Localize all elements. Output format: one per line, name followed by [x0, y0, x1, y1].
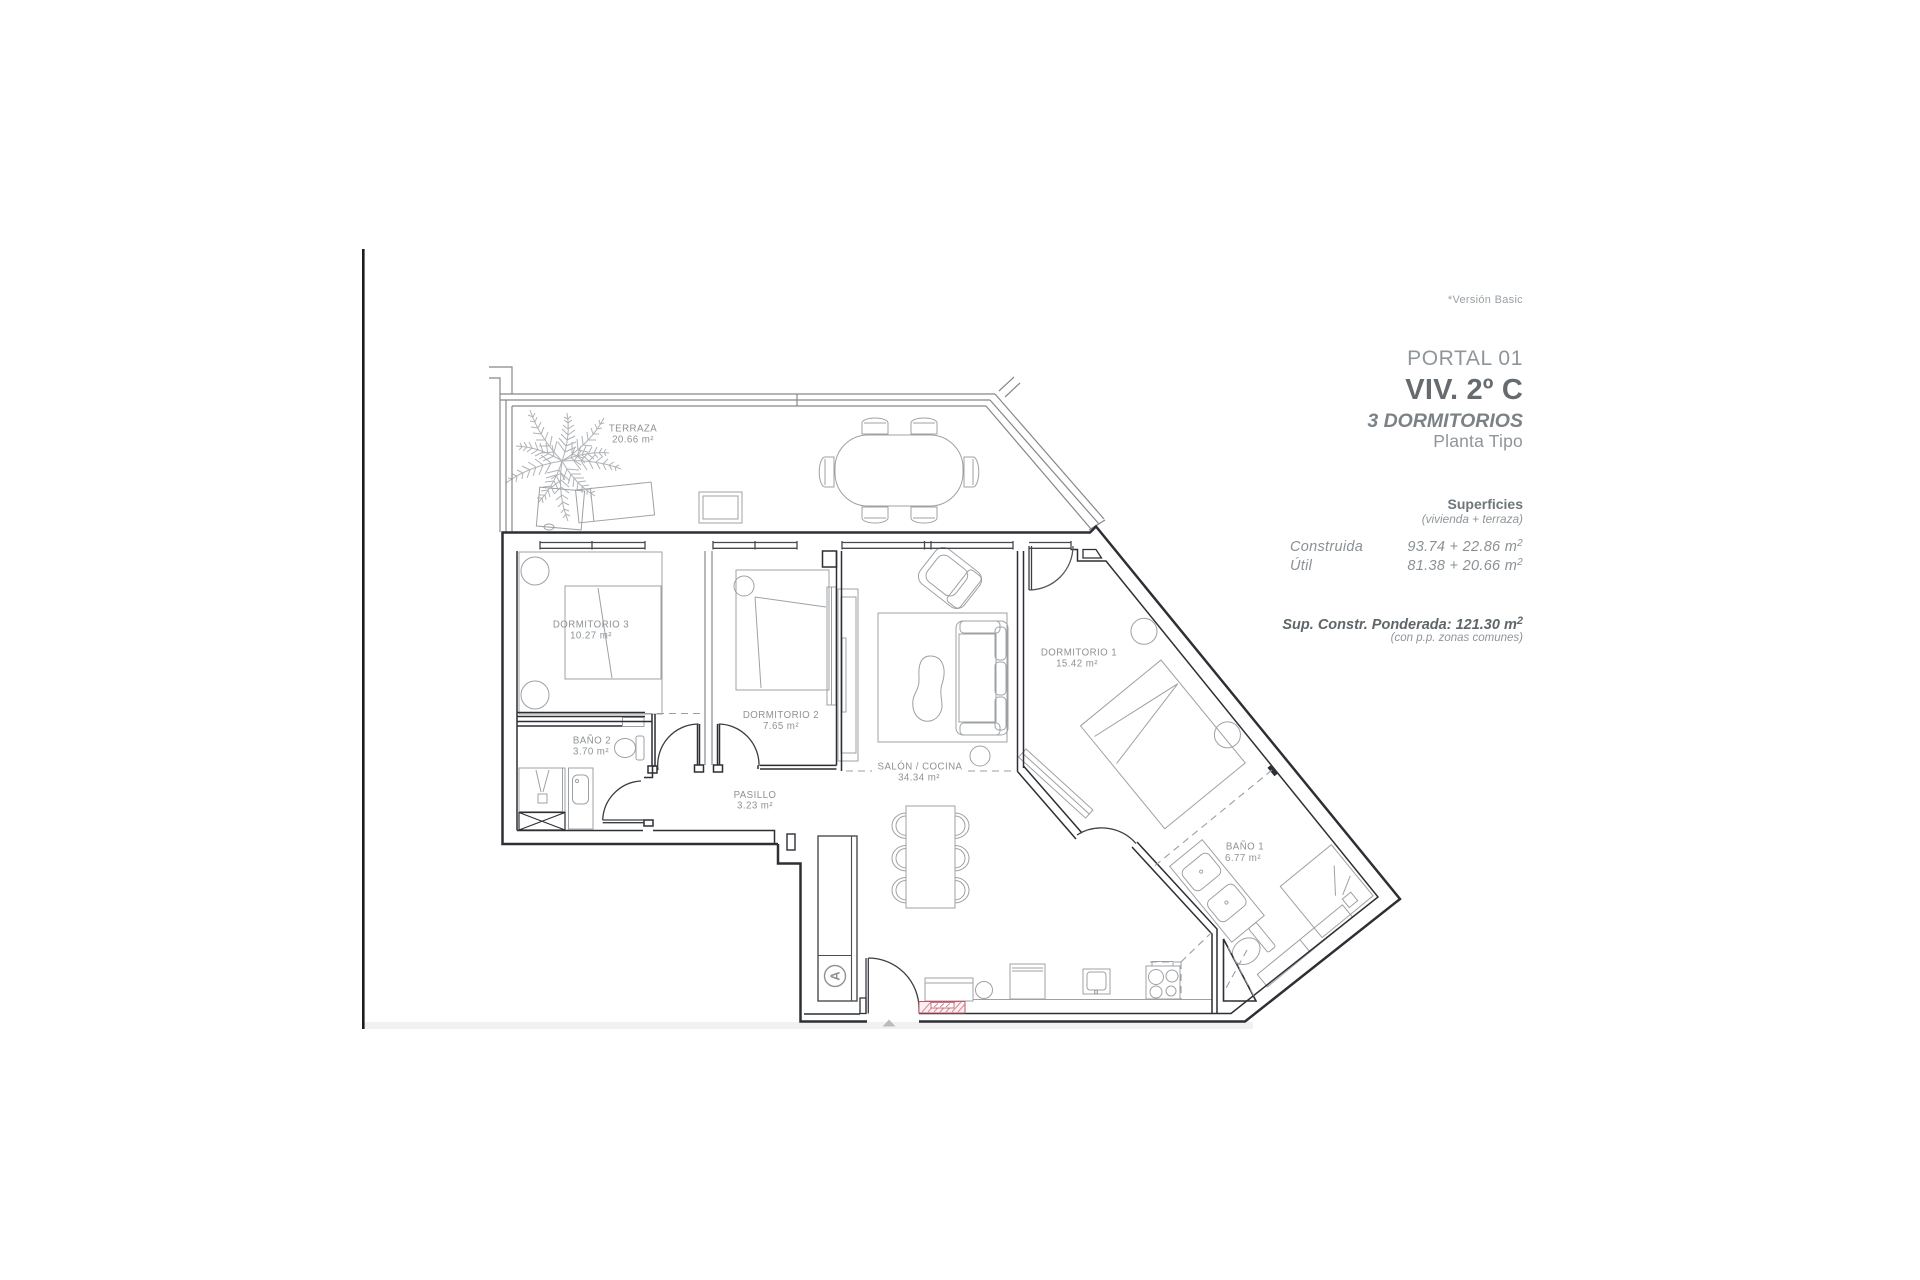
svg-text:PASILLO: PASILLO [734, 790, 777, 801]
svg-text:PORTAL 01: PORTAL 01 [1407, 347, 1523, 370]
svg-text:3.70 m²: 3.70 m² [573, 747, 609, 758]
svg-text:34.34 m²: 34.34 m² [898, 773, 940, 784]
svg-text:3 DORMITORIOS: 3 DORMITORIOS [1367, 410, 1523, 432]
svg-text:20.66 m²: 20.66 m² [612, 435, 654, 446]
svg-text:A: A [828, 971, 843, 981]
svg-text:*Versión Basic: *Versión Basic [1448, 294, 1523, 306]
svg-text:BAÑO 1: BAÑO 1 [1226, 842, 1264, 853]
svg-text:Construida: Construida [1290, 539, 1363, 555]
svg-text:(con p.p. zonas comunes): (con p.p. zonas comunes) [1391, 632, 1523, 644]
svg-text:7.65 m²: 7.65 m² [763, 721, 799, 732]
svg-text:DORMITORIO 3: DORMITORIO 3 [553, 620, 629, 631]
svg-text:BAÑO 2: BAÑO 2 [573, 736, 611, 747]
svg-text:VIV. 2º C: VIV. 2º C [1405, 374, 1523, 406]
svg-text:3.23 m²: 3.23 m² [737, 801, 773, 812]
svg-text:DORMITORIO 1: DORMITORIO 1 [1041, 648, 1117, 659]
svg-text:Planta Tipo: Planta Tipo [1433, 431, 1523, 451]
svg-text:93.74 + 22.86 m2: 93.74 + 22.86 m2 [1407, 538, 1523, 555]
svg-text:Sup. Constr. Ponderada: 121.30: Sup. Constr. Ponderada: 121.30 m2 [1282, 615, 1523, 633]
svg-text:Superficies: Superficies [1448, 496, 1524, 512]
svg-text:6.77 m²: 6.77 m² [1225, 853, 1261, 864]
svg-text:DORMITORIO 2: DORMITORIO 2 [743, 710, 819, 721]
svg-text:81.38 + 20.66 m2: 81.38 + 20.66 m2 [1407, 557, 1523, 574]
svg-text:SALÓN / COCINA: SALÓN / COCINA [878, 762, 963, 773]
svg-text:15.42 m²: 15.42 m² [1056, 659, 1098, 670]
svg-text:Útil: Útil [1290, 557, 1313, 574]
svg-text:10.27 m²: 10.27 m² [570, 631, 612, 642]
svg-text:TERRAZA: TERRAZA [609, 424, 657, 435]
svg-text:(vivienda + terraza): (vivienda + terraza) [1422, 512, 1523, 526]
